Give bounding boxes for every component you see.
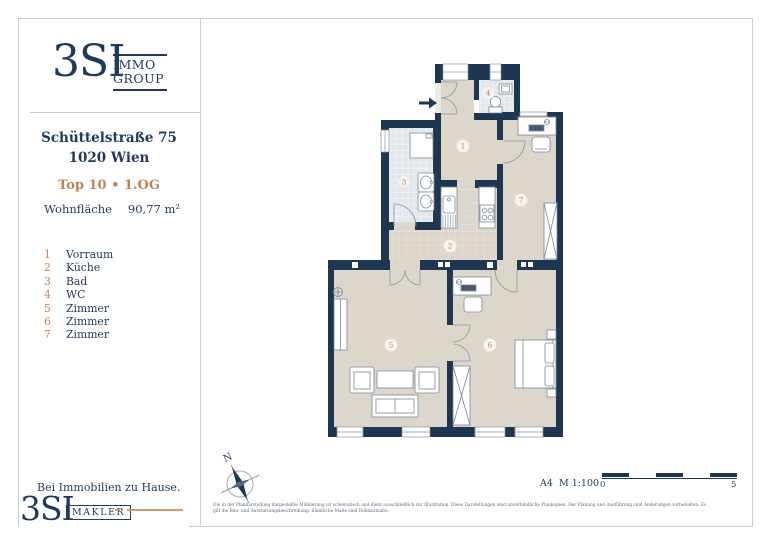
sidebar-divider: [200, 18, 201, 525]
room-number: 1: [461, 142, 466, 151]
brand-logo-sub2: GROUP: [113, 72, 167, 86]
unit-label: Top 10 • 1.OG: [18, 178, 200, 193]
footer-logo-sub: MAKLER: [66, 505, 131, 520]
legend-row: 1Vorraum: [44, 248, 113, 261]
scale-end-label: 5: [731, 480, 736, 490]
disclaimer-text: Die in der Plandarstellung dargestellte …: [213, 503, 633, 515]
area-label: Wohnfläche: [44, 202, 112, 216]
header-divider: [30, 112, 200, 113]
legend-num: 4: [44, 288, 66, 301]
scale-start-label: 0: [600, 480, 605, 490]
legend-row: 5Zimmer: [44, 302, 113, 315]
room-number: 7: [519, 196, 524, 205]
disclaimer-line2: gilt die Bau- und Ausstattungsbeschreibu…: [213, 509, 633, 515]
legend-num: 5: [44, 302, 66, 315]
area-row: Wohnfläche 90,77 m²: [44, 202, 180, 216]
compass-icon: N: [216, 450, 264, 508]
brand-logo-sub1: IMMO: [113, 58, 167, 72]
address-line1: Schüttelstraße 75: [18, 130, 200, 146]
footer-logo: 3SI MAKLER: [19, 492, 189, 532]
legend-row: 4WC: [44, 288, 113, 301]
legend-label: WC: [66, 288, 85, 301]
legend-num: 2: [44, 261, 66, 274]
room-legend: 1Vorraum 2Küche 3Bad 4WC 5Zimmer 6Zimmer…: [44, 248, 113, 342]
room-number: 2: [448, 242, 453, 251]
scale-bar: [602, 473, 737, 479]
compass-north-label: N: [222, 451, 235, 465]
legend-row: 2Küche: [44, 261, 113, 274]
legend-row: 3Bad: [44, 275, 113, 288]
footer-accent-line: [127, 509, 183, 511]
legend-label: Bad: [66, 275, 87, 288]
floorplan-page: 3SI IMMO GROUP Schüttelstraße 75 1020 Wi…: [0, 0, 770, 544]
footer-accent-dash: [115, 509, 120, 511]
scale-bar-segment: [602, 473, 629, 477]
room-number: 6: [488, 341, 493, 350]
address-line2: 1020 Wien: [18, 150, 200, 166]
floorplan-drawing: 1 2 3 4 5 6 7: [325, 56, 575, 446]
legend-num: 3: [44, 275, 66, 288]
legend-num: 1: [44, 248, 66, 261]
legend-label: Zimmer: [66, 315, 109, 328]
legend-label: Vorraum: [66, 248, 113, 261]
legend-label: Zimmer: [66, 302, 109, 315]
scale-bar-segment: [656, 473, 683, 477]
area-value: 90,77 m²: [128, 202, 180, 216]
room-number: 3: [402, 178, 407, 187]
legend-row: 7Zimmer: [44, 328, 113, 341]
legend-label: Küche: [66, 261, 100, 274]
room-number: 4: [486, 89, 491, 98]
scale-bar-segment: [710, 473, 737, 477]
legend-row: 6Zimmer: [44, 315, 113, 328]
entrance-arrow-icon: [419, 98, 437, 109]
legend-label: Zimmer: [66, 328, 109, 341]
brand-logo-sub: IMMO GROUP: [113, 54, 167, 91]
legend-num: 7: [44, 328, 66, 341]
legend-num: 6: [44, 315, 66, 328]
room-number: 5: [389, 341, 394, 350]
format-scale-label: A4 M 1:100: [540, 478, 599, 489]
